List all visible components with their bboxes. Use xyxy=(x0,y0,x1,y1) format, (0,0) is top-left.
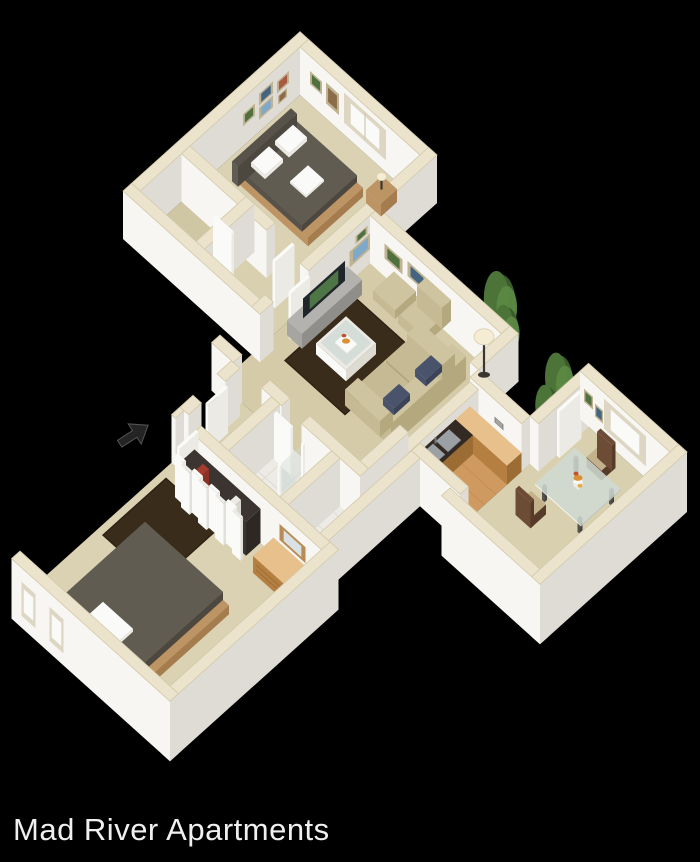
dining-west-wall xyxy=(530,416,539,472)
dining-door xyxy=(557,410,560,458)
food xyxy=(342,334,347,338)
closet-bifold-door xyxy=(198,481,207,531)
flowers xyxy=(574,475,583,481)
closet1-door xyxy=(232,232,235,280)
floorplan-3d-render xyxy=(0,0,700,862)
flowers xyxy=(578,484,583,488)
floor-lamp xyxy=(478,372,490,378)
dining-east-wall xyxy=(532,577,541,645)
food xyxy=(342,338,350,343)
closet-bifold-door xyxy=(241,517,244,561)
dining-chair-back xyxy=(531,499,535,528)
kitchen-north-wall xyxy=(522,416,531,472)
bedroom2-north-wall xyxy=(172,415,176,467)
closet-bifold-door xyxy=(224,501,227,545)
shower-post xyxy=(280,465,282,500)
shower-post xyxy=(301,444,303,479)
table-lamp xyxy=(377,173,387,181)
shower-post xyxy=(303,444,305,479)
shower-post xyxy=(278,465,280,500)
caption-text: Mad River Apartments xyxy=(13,812,330,848)
dining-chair-back xyxy=(612,442,616,471)
closet-bifold-door xyxy=(181,465,190,515)
closet-bifold-door xyxy=(190,471,193,515)
flowers xyxy=(574,472,579,476)
floorplan-image: Mad River Apartments xyxy=(0,0,700,862)
entry-arrow xyxy=(113,415,155,454)
living-west-wall-stub xyxy=(252,307,261,363)
closet-bifold-door xyxy=(207,486,210,530)
bedroom2-south-wall xyxy=(170,694,179,762)
closet-bifold-door xyxy=(215,496,224,546)
floor-lamp xyxy=(474,329,494,345)
closet-bifold-door xyxy=(232,511,241,561)
